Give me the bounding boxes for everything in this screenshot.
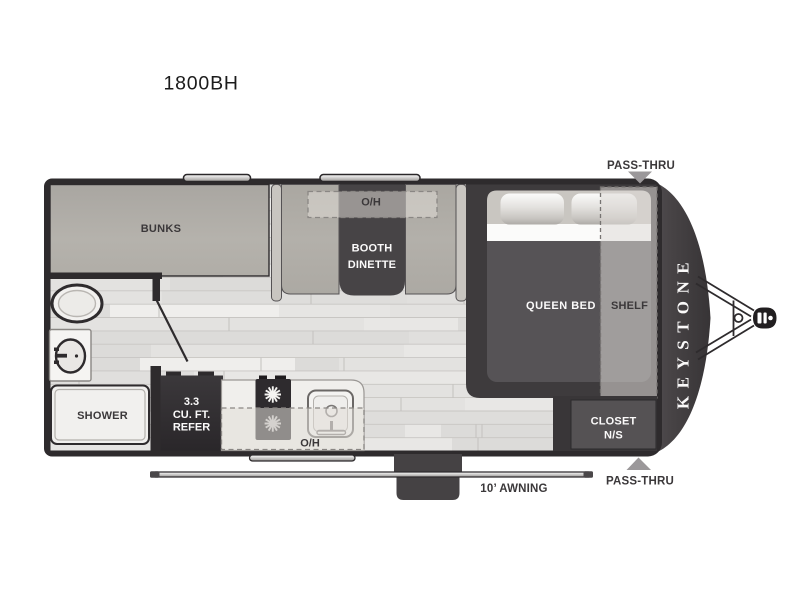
svg-text:SHELF: SHELF bbox=[611, 300, 648, 312]
svg-text:10’ AWNING: 10’ AWNING bbox=[480, 483, 547, 495]
svg-text:KEYSTONE: KEYSTONE bbox=[674, 255, 693, 409]
svg-text:PASS-THRU: PASS-THRU bbox=[607, 160, 675, 172]
svg-text:1800BH: 1800BH bbox=[164, 73, 239, 95]
svg-text:O/H: O/H bbox=[361, 197, 381, 209]
svg-text:CLOSET: CLOSET bbox=[591, 416, 637, 428]
svg-text:O/H: O/H bbox=[300, 438, 320, 450]
svg-text:QUEEN BED: QUEEN BED bbox=[526, 300, 596, 312]
svg-text:3.3: 3.3 bbox=[184, 396, 199, 408]
svg-text:PASS-THRU: PASS-THRU bbox=[606, 476, 674, 488]
svg-text:SHOWER: SHOWER bbox=[77, 410, 128, 422]
svg-text:REFER: REFER bbox=[173, 422, 210, 434]
svg-text:BOOTH: BOOTH bbox=[352, 243, 393, 255]
svg-text:CU. FT.: CU. FT. bbox=[173, 409, 210, 421]
svg-text:DINETTE: DINETTE bbox=[348, 259, 396, 271]
svg-text:N/S: N/S bbox=[604, 430, 623, 442]
svg-text:BUNKS: BUNKS bbox=[141, 223, 182, 235]
